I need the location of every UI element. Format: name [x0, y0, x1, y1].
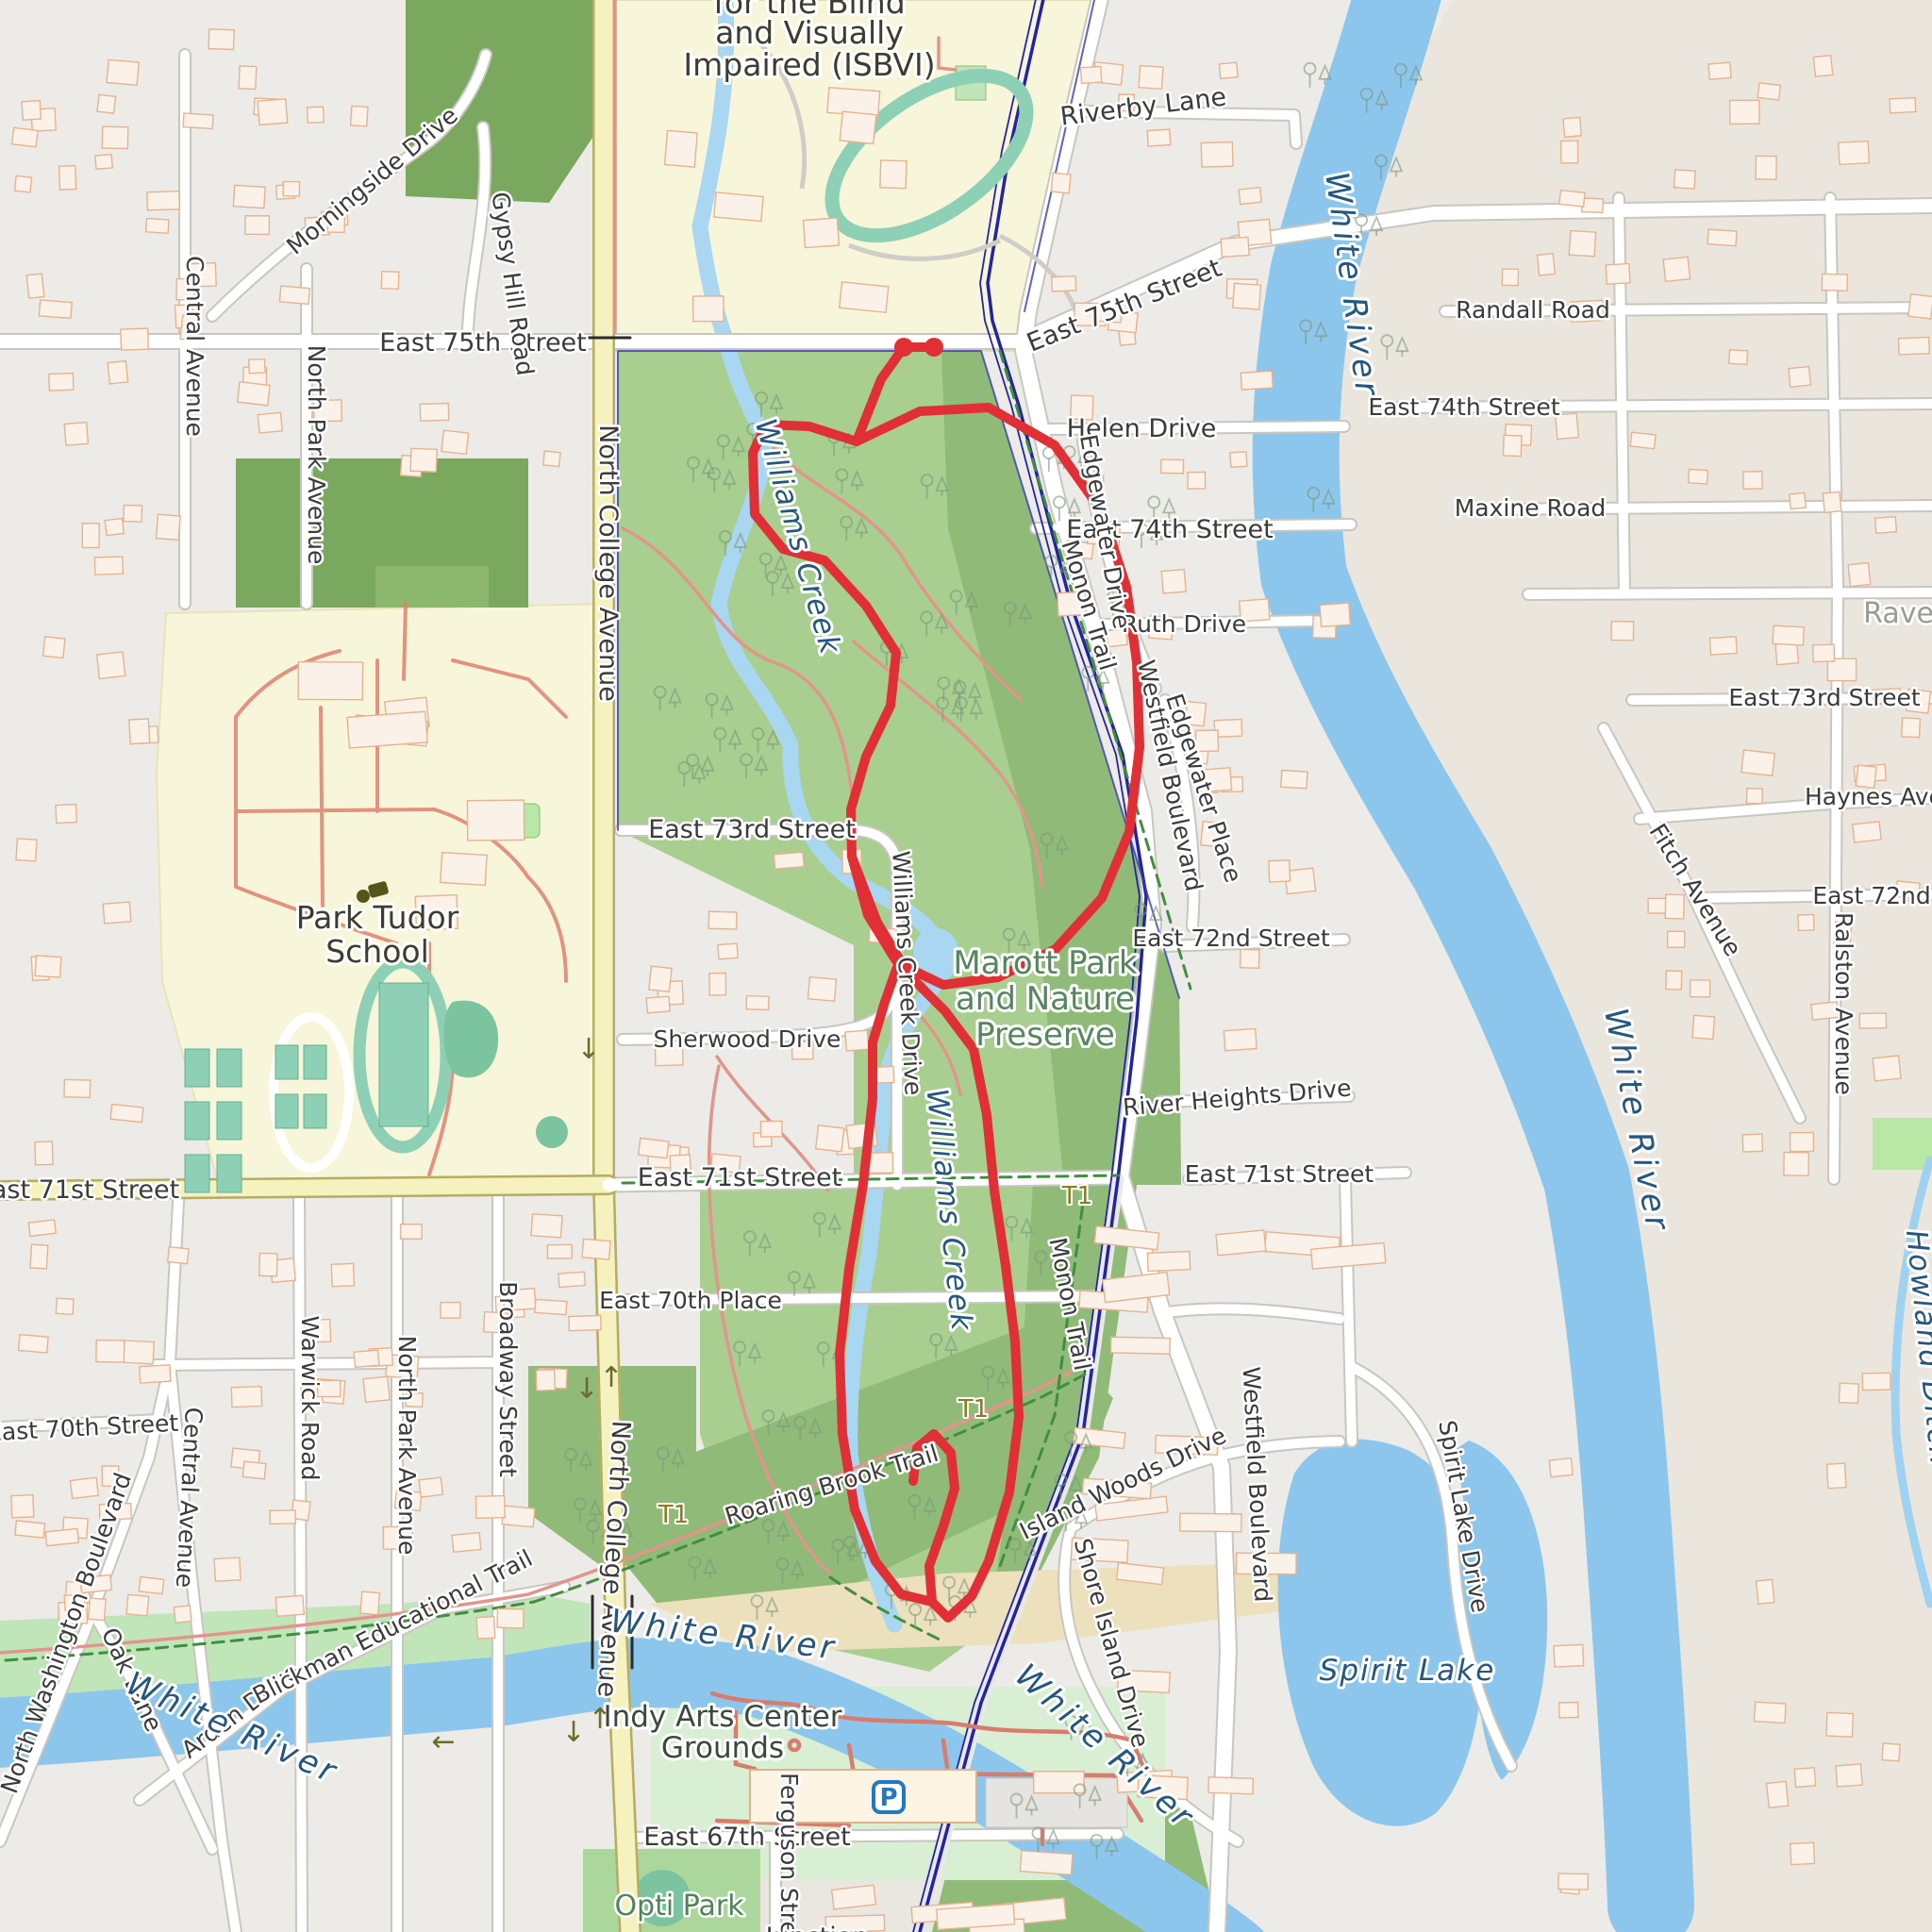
building [363, 1376, 390, 1402]
map-label-north-college-avenue-n: North College Avenue [593, 425, 623, 702]
map-label-ferguson-street: Ferguson Street [775, 1773, 803, 1932]
building [1853, 822, 1881, 842]
map-label-east-71st-street-e: East 71st Street [1185, 1160, 1374, 1188]
building [107, 59, 139, 85]
building [531, 1214, 562, 1238]
building [1147, 129, 1171, 146]
map-label-spirit-lake: Spirit Lake [1320, 1654, 1496, 1688]
map-label-broadway-street: Broadway Street [494, 1281, 522, 1477]
building [360, 1591, 379, 1614]
building [1554, 1644, 1584, 1667]
building [1862, 1373, 1890, 1390]
map-label-east-75th-street-w: East 75th Street [379, 328, 587, 358]
oneway-arrow-icon: ↑ [599, 1361, 623, 1394]
building [279, 286, 309, 304]
building [880, 160, 907, 189]
building [245, 216, 269, 235]
map-label-haynes-avenue: Haynes Avenue [1805, 783, 1932, 810]
building [1147, 1251, 1190, 1271]
building [502, 1506, 535, 1527]
building [497, 1608, 524, 1627]
building [1139, 66, 1163, 90]
building [1709, 637, 1737, 655]
building [832, 1885, 876, 1909]
building [1746, 789, 1762, 804]
building [1789, 367, 1810, 388]
building [1757, 1579, 1774, 1604]
building [441, 1303, 460, 1319]
map-label-east-73rd-street-e: East 73rd Street [1728, 684, 1921, 711]
park-tudor-field [379, 983, 428, 1126]
building [168, 1247, 189, 1264]
oneway-arrow-icon: ↓ [561, 1716, 585, 1749]
building [156, 514, 180, 540]
map-label-east-71st-street-w: East 71st Street [0, 1175, 179, 1205]
map-label-park-tudor-line1: Park Tudor [296, 899, 459, 936]
building [1794, 1768, 1815, 1788]
building [1559, 191, 1585, 207]
building [419, 1477, 442, 1497]
building [845, 1030, 869, 1051]
building [1161, 570, 1186, 593]
building [803, 218, 839, 248]
building [1798, 914, 1814, 930]
building [15, 1521, 45, 1538]
building [1606, 263, 1630, 284]
building [1790, 1133, 1814, 1152]
building [1754, 1702, 1786, 1723]
building [12, 127, 39, 146]
building [452, 1533, 481, 1553]
building [1561, 141, 1578, 163]
building [15, 175, 32, 192]
building [102, 126, 128, 148]
building [1729, 350, 1748, 365]
building [1320, 603, 1350, 626]
building [1559, 1702, 1578, 1717]
building [1503, 435, 1522, 456]
building [258, 99, 288, 125]
building [110, 1105, 143, 1123]
building [1201, 142, 1233, 167]
building [124, 1341, 154, 1364]
building [1674, 170, 1695, 189]
building [231, 1387, 261, 1407]
building [308, 107, 325, 123]
building [275, 1595, 304, 1616]
building [535, 1299, 567, 1314]
building [1558, 1874, 1589, 1890]
map-label-isbvi-line3: Impaired (ISBVI) [683, 46, 935, 83]
building [1826, 1712, 1854, 1737]
building [1773, 625, 1804, 645]
building [174, 1606, 192, 1623]
map-label-junction: Junction [764, 1923, 869, 1932]
building [714, 192, 763, 222]
building [1875, 517, 1897, 533]
building [1180, 1513, 1241, 1531]
map-label-t1-c: T1 [658, 1501, 689, 1529]
building [1767, 1781, 1789, 1807]
building [1882, 1743, 1900, 1761]
building [1707, 229, 1737, 246]
building [1742, 1134, 1762, 1152]
building [56, 1298, 74, 1314]
map-label-east-73rd-street-w: East 73rd Street [648, 815, 856, 844]
school-icon-dot [357, 890, 370, 903]
building [1743, 472, 1762, 490]
building [649, 966, 672, 991]
building [1908, 294, 1932, 319]
building [59, 166, 76, 190]
building [1281, 771, 1307, 789]
building [82, 524, 99, 548]
building [709, 974, 726, 995]
building [1848, 563, 1871, 587]
map-label-marott-line1: Marott Park [953, 944, 1137, 982]
building [1790, 1842, 1815, 1864]
map-label-opti-park: Opti Park [614, 1890, 744, 1923]
map-label-indy-arts-line1: Indy Arts Center [603, 1700, 841, 1734]
building [441, 430, 469, 454]
building [1775, 642, 1799, 665]
map-label-maxine-road: Maxine Road [1455, 494, 1607, 522]
building [298, 662, 362, 700]
building [16, 839, 37, 861]
building [94, 557, 123, 575]
building [1902, 718, 1921, 738]
building [646, 996, 670, 1013]
building [536, 1370, 555, 1391]
building [840, 111, 876, 143]
building [708, 911, 737, 929]
building [97, 652, 125, 679]
building [56, 805, 76, 824]
building [1161, 459, 1184, 474]
map-canvas[interactable]: for the Blindand VisuallyImpaired (ISBVI… [0, 0, 1932, 1932]
building [347, 711, 427, 748]
building [331, 1263, 354, 1286]
building [1730, 100, 1759, 124]
building [64, 423, 88, 446]
building [1813, 56, 1833, 77]
map-label-park-tudor-line2: School [325, 933, 429, 970]
woods-campus-2 [375, 566, 489, 608]
building [558, 1272, 586, 1287]
building [1826, 1463, 1845, 1489]
map-label-east-70th-place: East 70th Place [599, 1287, 782, 1314]
building [35, 1141, 53, 1165]
map-label-east-72nd-street-e: East 72nd Street [1812, 882, 1932, 909]
building [1836, 1764, 1862, 1787]
map-label-north-park-avenue-s: North Park Avenue [393, 1336, 421, 1556]
building [208, 29, 234, 50]
building [126, 1594, 149, 1616]
building [239, 66, 257, 90]
map-label-east-74th-street-e: East 74th Street [1368, 393, 1559, 421]
building [121, 328, 149, 350]
building [1741, 750, 1774, 775]
building [1813, 644, 1835, 661]
building [49, 374, 74, 391]
building [1708, 62, 1731, 79]
building [26, 274, 44, 298]
map-label-north-park-avenue-n: North Park Avenue [303, 345, 330, 565]
map-label-t1-a: T1 [1061, 1182, 1092, 1210]
building [97, 94, 116, 113]
building [1890, 98, 1916, 113]
building [30, 1244, 48, 1269]
map-label-ruth-drive: Ruth Drive [1122, 610, 1246, 638]
building [808, 977, 836, 1002]
oneway-arrow-icon: ← [431, 1725, 455, 1758]
building [64, 1079, 91, 1097]
building [1790, 492, 1807, 508]
building [1689, 469, 1708, 484]
building [283, 182, 299, 196]
building [1034, 1772, 1084, 1793]
park-tudor-pond-2 [536, 1116, 568, 1148]
building [22, 101, 41, 121]
building [1221, 237, 1249, 257]
building [108, 361, 128, 384]
building [1549, 1458, 1573, 1477]
building [147, 192, 179, 210]
building [238, 382, 271, 406]
building [547, 1244, 572, 1258]
map-label-ravenswood: Ravenswood [1863, 597, 1932, 630]
building [242, 1461, 266, 1479]
building [1757, 83, 1780, 100]
building [410, 448, 437, 472]
building [840, 282, 889, 312]
map-label-east-72nd-street: East 72nd Street [1132, 924, 1330, 952]
building [718, 943, 738, 959]
building [249, 359, 265, 374]
building [43, 637, 65, 658]
building [28, 1220, 56, 1236]
building [270, 1510, 295, 1524]
map-label-central-avenue-n: Central Avenue [181, 256, 208, 437]
building [569, 1315, 601, 1330]
building [1216, 1230, 1266, 1256]
building [1241, 371, 1273, 390]
building [1611, 622, 1634, 641]
building [1110, 1337, 1170, 1354]
building [1822, 274, 1847, 291]
building [183, 113, 213, 129]
oneway-arrow-icon: ↓ [575, 1373, 598, 1406]
building [1666, 971, 1682, 990]
building [1240, 949, 1259, 968]
building [475, 1496, 505, 1519]
building [124, 506, 142, 523]
building [1188, 473, 1206, 490]
map-label-east-67th-street: East 67th Street [643, 1823, 851, 1852]
building [11, 1495, 34, 1518]
building [420, 404, 449, 422]
building [1859, 1013, 1886, 1028]
building [103, 902, 131, 924]
building [1839, 142, 1870, 165]
building [693, 296, 724, 322]
gps-track-endpoint[interactable] [924, 338, 943, 357]
building [476, 1617, 495, 1640]
building [1051, 173, 1071, 193]
building [543, 451, 560, 466]
building [96, 1341, 125, 1362]
green-patch-e [1873, 1118, 1932, 1170]
oneway-arrow-icon: ↓ [576, 1033, 600, 1066]
building [1692, 1015, 1715, 1039]
building [1208, 1777, 1254, 1794]
map-label-t1-b: T1 [958, 1395, 989, 1424]
building [214, 1557, 241, 1581]
building [1690, 980, 1710, 997]
building [1668, 931, 1685, 947]
building [760, 1121, 782, 1137]
building [582, 1239, 610, 1259]
building [45, 1528, 78, 1545]
building [1582, 198, 1603, 212]
map-label-east-71st-street-c: East 71st Street [638, 1163, 841, 1192]
building [146, 218, 169, 233]
oneway-arrow-icon: ↑ [588, 1703, 611, 1736]
building [351, 106, 368, 126]
map-label-indy-arts-line2: Grounds [661, 1731, 784, 1765]
building [354, 1350, 379, 1367]
building [233, 185, 265, 208]
building [746, 996, 769, 1010]
building [1898, 337, 1929, 354]
map-label-ralston-avenue: Ralston Avenue [1830, 912, 1857, 1095]
building [1219, 62, 1238, 78]
building [1020, 1851, 1073, 1875]
building [1630, 432, 1656, 449]
building [1756, 156, 1776, 179]
building [95, 155, 112, 170]
map-label-sherwood-drive: Sherwood Drive [654, 1025, 841, 1053]
parking-icon-letter: P [879, 1784, 897, 1812]
building [1784, 1153, 1808, 1176]
building [1052, 276, 1076, 291]
building [35, 956, 61, 977]
map-label-randall-road: Randall Road [1456, 296, 1610, 324]
building [1537, 254, 1555, 275]
building [1563, 117, 1581, 137]
building [1663, 257, 1690, 281]
gps-track-endpoint[interactable] [894, 338, 913, 357]
building [467, 800, 524, 841]
building [816, 1125, 844, 1152]
building [140, 1365, 171, 1383]
building [129, 719, 150, 744]
map-label-warwick-road: Warwick Road [296, 1315, 324, 1480]
map-label-marott-line2: and Nature [956, 980, 1135, 1018]
building [39, 300, 72, 318]
building [1233, 283, 1261, 309]
building [19, 1335, 49, 1353]
building [665, 130, 698, 167]
building [381, 272, 399, 290]
building [639, 1138, 669, 1158]
building [401, 1224, 423, 1240]
building [1239, 188, 1261, 205]
building [258, 412, 282, 433]
building [1823, 491, 1841, 512]
building [1269, 860, 1291, 882]
building [774, 852, 804, 869]
building [441, 853, 487, 886]
building [1502, 269, 1518, 286]
building [1873, 1056, 1901, 1081]
building [1569, 231, 1595, 257]
building [70, 1477, 98, 1498]
building [1080, 66, 1101, 83]
building [1224, 1029, 1257, 1051]
building [1665, 894, 1684, 919]
building [105, 518, 124, 535]
building [1839, 1383, 1858, 1403]
map-label-marott-line3: Preserve [975, 1016, 1115, 1054]
building [259, 1253, 277, 1275]
building [139, 1576, 164, 1593]
building [1230, 452, 1247, 467]
